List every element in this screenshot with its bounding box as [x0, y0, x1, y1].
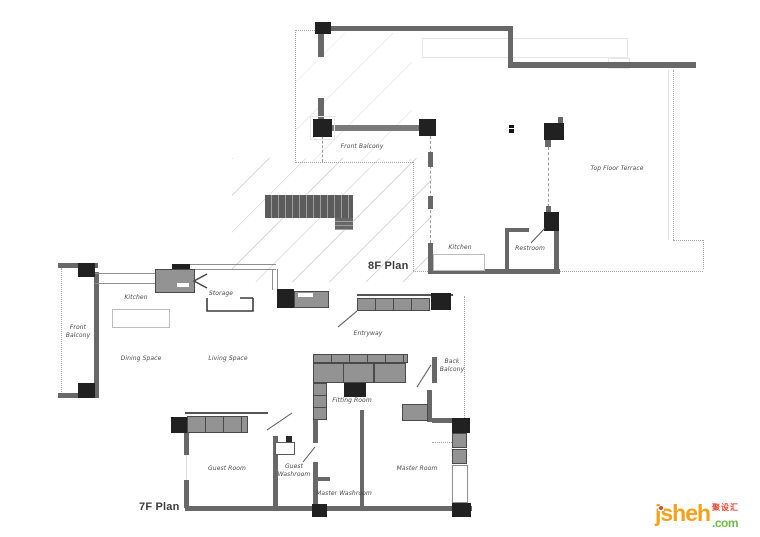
- room-label-top-floor-terrace: Top Floor Terrace: [590, 165, 643, 173]
- column-restroom: [544, 212, 559, 231]
- staircase-run: [265, 195, 353, 218]
- master-cabinet: [452, 449, 467, 464]
- wall-stub: [545, 140, 551, 147]
- wall-stub: [428, 196, 433, 209]
- terrace-boundary-dotted: [413, 271, 428, 272]
- wall: [330, 26, 512, 31]
- guest-sink-faucet: [286, 436, 292, 442]
- master-door-frame: [452, 465, 468, 503]
- column: [171, 417, 187, 433]
- wall-stub: [318, 477, 330, 481]
- room-label-fitting-room: Fitting Room: [332, 397, 372, 405]
- wall-stub: [318, 33, 324, 57]
- wall: [554, 230, 559, 274]
- column: [452, 418, 470, 433]
- guest-wardrobe: [187, 416, 248, 433]
- logo-j-dot: [659, 506, 663, 510]
- staircase-landing: [335, 218, 353, 230]
- boundary-dotted: [413, 162, 414, 271]
- watermark-logo: jsheh 聚设汇 .com: [653, 498, 759, 535]
- entry-closet: [431, 293, 451, 310]
- window-line: [190, 269, 276, 270]
- guest-room-wall-line: [185, 412, 268, 414]
- column: [544, 123, 564, 140]
- room-label-restroom: Restroom: [515, 245, 545, 253]
- room-label-front-balcony-8f: Front Balcony: [341, 143, 384, 151]
- room-label-living-space: Living Space: [208, 355, 247, 363]
- column: [78, 383, 95, 398]
- column: [313, 119, 332, 137]
- plan-title-7f: 7F Plan: [139, 502, 180, 513]
- leader-line-restroom: [531, 228, 545, 243]
- master-cabinet: [452, 433, 467, 448]
- wardrobe: [374, 363, 406, 383]
- opening-dashed: [548, 147, 549, 207]
- room-label-guest-room: Guest Room: [208, 465, 246, 473]
- room-label-guest-washroom: Guest Washroom: [275, 463, 313, 479]
- window-line: [277, 269, 278, 290]
- column-stair: [277, 289, 294, 308]
- wall-restroom: [505, 228, 529, 232]
- stair-cabinet-slot: [298, 293, 313, 297]
- wall-bottom: [185, 506, 472, 511]
- window-gap-line: [186, 455, 187, 480]
- room-label-back-balcony: Back Balcony: [433, 358, 471, 374]
- column: [312, 504, 327, 517]
- window-line: [272, 269, 273, 290]
- master-dresser: [402, 404, 428, 421]
- kitchen-sink: [177, 283, 189, 287]
- wall-stub: [428, 152, 433, 167]
- column: [419, 119, 436, 136]
- terrace-boundary-dotted: [673, 240, 703, 241]
- shoe-cabinet: [357, 298, 430, 311]
- window-line: [95, 283, 158, 284]
- wall: [508, 26, 513, 67]
- terrace-edge-line: [668, 70, 669, 240]
- wall: [184, 433, 189, 455]
- section-marker: [509, 125, 514, 133]
- boundary-dotted: [295, 162, 413, 163]
- boundary-dotted: [295, 30, 296, 163]
- terrace-boundary-dotted: [560, 271, 703, 272]
- kitchen-counter-8f: [433, 254, 485, 271]
- door-swing-guest-room: [267, 413, 292, 430]
- wall: [508, 62, 696, 68]
- room-label-master-room: Master Room: [397, 465, 438, 473]
- terrace-boundary-dotted: [673, 70, 674, 240]
- logo-cjk-text: 聚设汇: [712, 504, 739, 512]
- column: [78, 263, 95, 277]
- room-label-entryway: Entryway: [354, 330, 383, 338]
- door-swing-entry: [338, 311, 357, 327]
- door-swing-washroom: [303, 447, 315, 462]
- wardrobe-divider: [343, 364, 344, 382]
- floor-plan-canvas: Front Balcony Top Floor Terrace Kitchen …: [0, 0, 760, 537]
- room-label-kitchen-7f: Kitchen: [124, 294, 147, 302]
- wall-restroom: [505, 228, 509, 274]
- kitchen-counter-top: [155, 269, 195, 293]
- boundary-dotted: [295, 30, 317, 31]
- hatch-area-balcony-8f: [296, 33, 412, 161]
- room-label-dining-space: Dining Space: [121, 355, 162, 363]
- wall: [313, 462, 318, 508]
- wardrobe-top-strip: [313, 354, 408, 363]
- wardrobe-column: [313, 383, 327, 420]
- room-label-front-balcony-7f: Front Balcony: [59, 324, 97, 340]
- column: [315, 22, 331, 34]
- skylight-outline: [422, 38, 628, 58]
- logo-tld: .com: [712, 517, 738, 529]
- plan-title-8f: 8F Plan: [368, 261, 409, 272]
- window-line: [190, 264, 276, 265]
- room-label-kitchen-8f: Kitchen: [448, 244, 471, 252]
- wall: [184, 480, 189, 508]
- wall: [432, 418, 452, 423]
- balcony-parapet-8f: [330, 125, 422, 131]
- column: [452, 503, 471, 517]
- door-swing-back-balcony: [417, 365, 431, 387]
- room-label-storage: Storage: [209, 290, 233, 298]
- wall: [313, 420, 318, 443]
- window-line: [95, 273, 158, 274]
- room-label-master-washroom: Master Washroom: [316, 490, 372, 498]
- terrace-boundary-dotted: [703, 240, 704, 269]
- direction-chevron: [194, 274, 207, 288]
- storage-rack-symbol: [207, 298, 253, 311]
- kitchen-island: [112, 309, 170, 328]
- guest-sink: [275, 442, 295, 455]
